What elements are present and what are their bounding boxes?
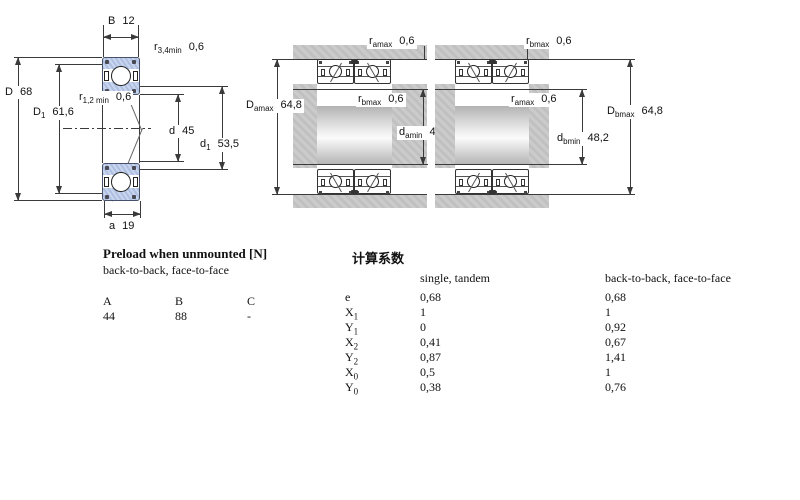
housing-bottom	[435, 194, 549, 208]
cell: 1,41	[605, 350, 765, 365]
face-mark	[489, 190, 496, 194]
cage	[321, 179, 325, 186]
dim-label-d1: d153,5	[198, 138, 241, 152]
cage-lower-right	[133, 177, 138, 187]
col-header: single, tandem	[420, 271, 605, 290]
leader-D-top	[14, 57, 102, 58]
leader-D1-top	[55, 64, 102, 65]
dim-label-d: d45	[167, 125, 196, 138]
cell: 0,5	[420, 365, 605, 380]
leader-Dbmax-top	[549, 59, 635, 60]
dim-arrow-D1	[59, 64, 60, 194]
bearing-datasheet: B12 r3,4min0,6 D68 D161,6	[0, 0, 800, 500]
bearing-section	[455, 169, 492, 194]
shoulder-left	[293, 84, 317, 168]
corner-mark	[105, 195, 109, 199]
cage-upper-left	[104, 71, 109, 81]
col-header: C	[247, 294, 319, 309]
bore-band	[102, 95, 140, 163]
spacer	[345, 271, 420, 290]
cage-lower-left	[104, 177, 109, 187]
cage	[346, 69, 350, 76]
cell: 1	[420, 305, 605, 320]
face-mark	[351, 190, 358, 194]
cell: 0,68	[420, 290, 605, 305]
dim-label-rbmax: rbmax0,6	[356, 93, 406, 107]
preload-subtitle: back-to-back, face-to-face	[103, 263, 229, 278]
row-label: Y0	[345, 380, 420, 395]
corner-mark	[524, 191, 527, 194]
dim-arrow-B	[103, 37, 139, 38]
dim-arrow-d1	[222, 86, 223, 170]
cell: 0,41	[420, 335, 605, 350]
bearing-section	[354, 59, 391, 84]
leader-Dbmax-bottom	[549, 194, 635, 195]
dim-label-r12: r1,2 min0,6	[77, 91, 133, 105]
cage	[321, 69, 325, 76]
cell: 0,38	[420, 380, 605, 395]
cell: 0	[420, 320, 605, 335]
ext-line-B-right	[138, 25, 139, 57]
col-header: B	[175, 294, 247, 309]
dim-label-D: D68	[3, 86, 34, 99]
cage	[496, 179, 500, 186]
corner-mark	[132, 60, 136, 64]
cell: 0,92	[605, 320, 765, 335]
dim-label-Damax: Damax64,8	[244, 99, 304, 113]
corner-mark	[319, 191, 322, 194]
dim-arrow-dbmin	[582, 89, 583, 165]
cage	[358, 179, 362, 186]
row-label: X0	[345, 365, 420, 380]
corner-mark	[319, 61, 322, 64]
bearing-section	[455, 59, 492, 84]
row-label: Y2	[345, 350, 420, 365]
row-label: Y1	[345, 320, 420, 335]
dim-label-r34: r3,4min0,6	[152, 41, 206, 55]
dim-label-ramax: ramax0,6	[509, 93, 559, 107]
bearing-section	[317, 59, 354, 84]
corner-mark	[457, 61, 460, 64]
dim-label-ramax: ramax0,6	[367, 35, 417, 49]
ext-line-B-left	[103, 25, 104, 57]
cell: 0,67	[605, 335, 765, 350]
factors-title: 计算系数	[352, 248, 404, 267]
cell: -	[247, 309, 319, 324]
corner-mark	[132, 166, 136, 170]
cell: 1	[605, 305, 765, 320]
cage	[484, 69, 488, 76]
cage	[358, 69, 362, 76]
bearing-section	[492, 59, 529, 84]
cell: 88	[175, 309, 247, 324]
cell: 0,87	[420, 350, 605, 365]
cage-upper-right	[133, 71, 138, 81]
bearing-section	[317, 169, 354, 194]
factors-grid: single, tandem back-to-back, face-to-fac…	[345, 271, 765, 395]
cage	[521, 69, 525, 76]
axis-centerline	[63, 128, 151, 129]
cage	[459, 179, 463, 186]
ball-upper	[111, 66, 131, 86]
shaft-block	[317, 106, 392, 164]
cell: 1	[605, 365, 765, 380]
cage	[383, 69, 387, 76]
cage	[383, 179, 387, 186]
dim-label-B: B12	[106, 15, 137, 28]
cage	[496, 69, 500, 76]
bore-line-bottom	[293, 194, 427, 195]
housing-bottom	[293, 194, 427, 208]
dim-arrow-D	[18, 57, 19, 201]
bearing-section	[492, 169, 529, 194]
cage	[484, 179, 488, 186]
dim-label-D1: D161,6	[31, 106, 76, 120]
dim-arrow-Dbmax	[630, 59, 631, 195]
dim-label-dbmin: dbmin48,2	[555, 132, 611, 146]
leader-d1-bottom	[140, 169, 228, 170]
face-mark	[489, 60, 496, 64]
corner-mark	[132, 195, 136, 199]
bore-line-bottom	[435, 194, 549, 195]
corner-mark	[105, 166, 109, 170]
cage	[459, 69, 463, 76]
leader-d1-top	[140, 86, 228, 87]
preload-grid: A B C 44 88 -	[103, 294, 319, 324]
ball-lower	[111, 172, 131, 192]
dim-arrow-a	[104, 214, 141, 215]
preload-title: Preload when unmounted [N]	[103, 246, 267, 262]
col-header: back-to-back, face-to-face	[605, 271, 765, 290]
cage	[346, 179, 350, 186]
cell: 0,68	[605, 290, 765, 305]
dim-label-rbmax: rbmax0,6	[524, 35, 574, 49]
leader-D-bottom	[14, 200, 102, 201]
col-header: A	[103, 294, 175, 309]
row-label: e	[345, 290, 420, 305]
corner-mark	[524, 61, 527, 64]
leader-ramax	[424, 46, 425, 59]
corner-mark	[457, 191, 460, 194]
cell: 44	[103, 309, 175, 324]
bearing-section	[354, 169, 391, 194]
dim-arrow-Damax	[277, 59, 278, 195]
corner-mark	[386, 191, 389, 194]
shoulder-left	[435, 84, 455, 168]
leader-D1-bottom	[55, 193, 102, 194]
row-label: X1	[345, 305, 420, 320]
dim-label-Dbmax: Dbmax64,8	[605, 105, 665, 119]
face-mark	[351, 60, 358, 64]
shaft-block	[455, 106, 529, 164]
dim-label-a: a19	[107, 220, 136, 233]
row-label: X2	[345, 335, 420, 350]
cell: 0,76	[605, 380, 765, 395]
corner-mark	[105, 60, 109, 64]
cage	[521, 179, 525, 186]
corner-mark	[386, 61, 389, 64]
